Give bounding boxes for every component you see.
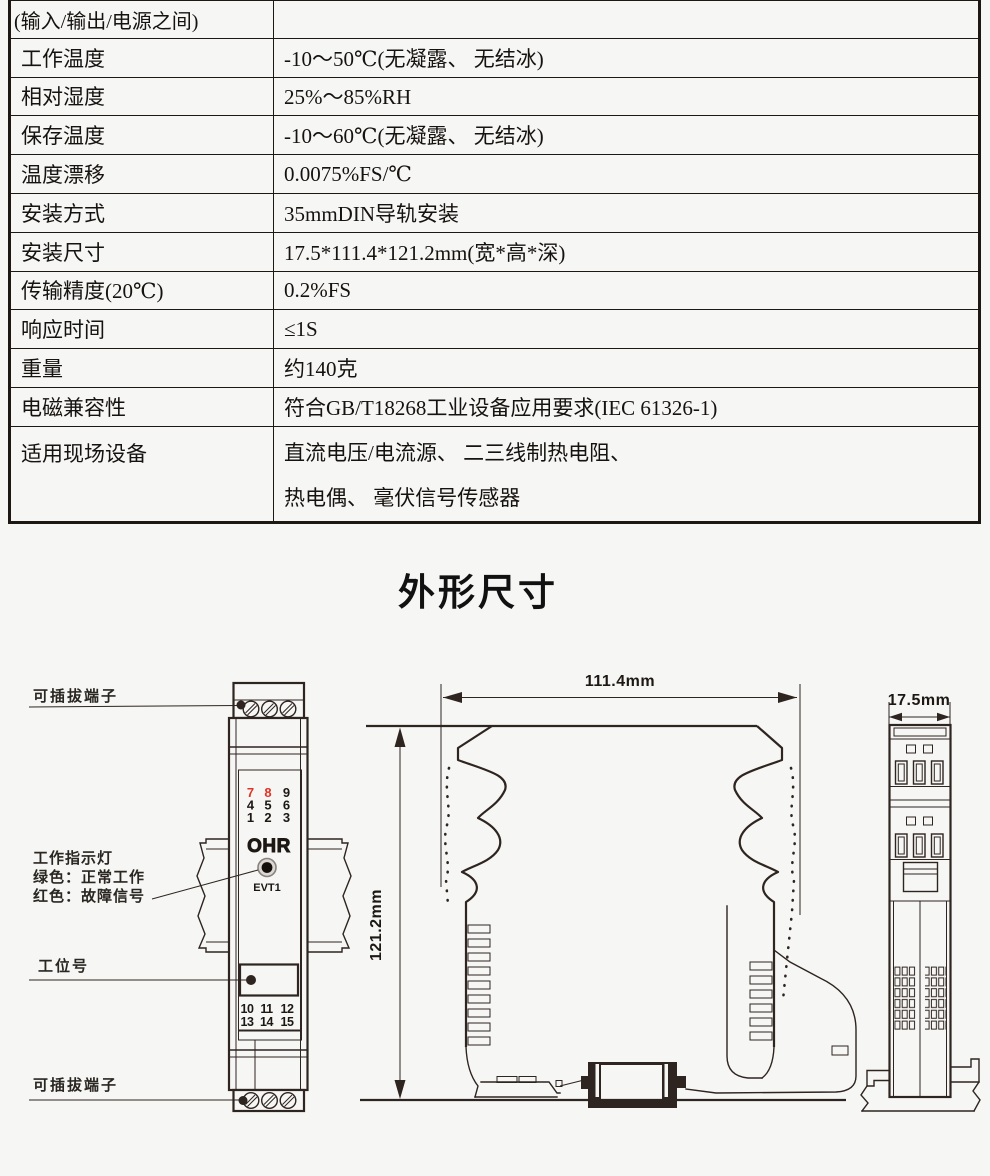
- spec-label: 安装方式: [10, 193, 274, 232]
- callout-indicator-title: 工作指示灯: [33, 849, 113, 867]
- terminal-block-bottom: [234, 1090, 305, 1111]
- spec-value: 热电偶、 毫伏信号传感器: [284, 476, 972, 521]
- callout-indicator-red: 红色：故障信号: [33, 887, 145, 905]
- profile-outline: [360, 726, 856, 1108]
- spec-label: 安装尺寸: [10, 232, 274, 271]
- table-row: 保存温度-10～60℃(无凝露、 无结冰): [10, 116, 980, 155]
- spec-table: (输入/输出/电源之间)工作温度-10～50℃(无凝露、 无结冰)相对湿度25%…: [8, 0, 981, 524]
- spec-value: 25%～85%RH: [274, 77, 980, 116]
- dim-width-label: 111.4mm: [585, 673, 655, 690]
- spec-value: 约140克: [274, 349, 980, 388]
- spec-value: -10～50℃(无凝露、 无结冰): [274, 38, 980, 77]
- spec-label: 重量: [10, 349, 274, 388]
- spec-label: 响应时间: [10, 310, 274, 349]
- dimension-depth: 121.2mm: [368, 728, 406, 1100]
- spec-label: 工作温度: [10, 38, 274, 77]
- table-row: 相对湿度25%～85%RH: [10, 77, 980, 116]
- status-led-icon: [258, 859, 276, 877]
- brand-logo: OHR: [247, 836, 291, 857]
- table-row: 工作温度-10～50℃(无凝露、 无结冰): [10, 38, 980, 77]
- dim-depth-label: 121.2mm: [368, 889, 385, 961]
- spec-value: ≤1S: [274, 310, 980, 349]
- terminal-number: 12: [281, 1002, 294, 1016]
- spec-label: 温度漂移: [10, 155, 274, 194]
- spec-label: 适用现场设备: [10, 426, 274, 522]
- terminal-number: 11: [260, 1002, 273, 1016]
- spec-label: (输入/输出/电源之间): [10, 0, 274, 38]
- callout-indicator-green: 绿色：正常工作: [33, 868, 145, 886]
- callouts: 可插拔端子 工作指示灯 绿色：正常工作 红色：故障信号 工位号 可插拔端子: [29, 687, 258, 1100]
- terminal-block-top: [234, 683, 305, 718]
- leader-dot: [237, 701, 246, 710]
- spec-label: 相对湿度: [10, 77, 274, 116]
- section-title: 外形尺寸: [0, 562, 956, 616]
- table-row: 安装方式35mmDIN导轨安装: [10, 193, 980, 232]
- narrow-side-view: 17.5mm: [861, 692, 980, 1111]
- dimension-width: 111.4mm: [441, 673, 800, 915]
- terminal-number: 14: [260, 1015, 273, 1029]
- callout-terminal-bottom: 可插拔端子: [33, 1076, 118, 1094]
- dimension-side: 17.5mm: [888, 692, 951, 729]
- terminal-number: 10: [241, 1002, 254, 1016]
- side-profile-view: 111.4mm 121.2mm: [360, 673, 856, 1108]
- table-row: 重量约140克: [10, 349, 980, 388]
- table-row: 安装尺寸17.5*111.4*121.2mm(宽*高*深): [10, 232, 980, 271]
- led-label: EVT1: [253, 882, 281, 894]
- spec-value: 直流电压/电流源、 二三线制热电阻、: [284, 431, 972, 476]
- rail-slider-foot: [475, 1077, 588, 1098]
- vent-slots-left: [468, 925, 490, 1045]
- spec-value: -10～60℃(无凝露、 无结冰): [274, 116, 980, 155]
- terminal-number: 2: [264, 810, 271, 825]
- outline-drawing: 7 8 9 4 5 6 1 2 3 OHR EVT1: [0, 640, 990, 1176]
- module-body: [229, 718, 308, 1090]
- spec-label: 传输精度(20℃): [10, 271, 274, 310]
- terminal-numbers-bottom: 10 11 12 13 14 15: [241, 1002, 294, 1029]
- table-row: 电磁兼容性符合GB/T18268工业设备应用要求(IEC 61326-1): [10, 387, 980, 426]
- callout-terminal-top: 可插拔端子: [33, 687, 118, 705]
- spec-value: 0.0075%FS/℃: [274, 155, 980, 194]
- table-row: 响应时间≤1S: [10, 310, 980, 349]
- terminal-number: 1: [247, 810, 254, 825]
- dim-side-label: 17.5mm: [888, 692, 951, 709]
- table-row: 温度漂移0.0075%FS/℃: [10, 155, 980, 194]
- vent-grid: [895, 966, 917, 1031]
- spec-label: 保存温度: [10, 116, 274, 155]
- spec-value: 符合GB/T18268工业设备应用要求(IEC 61326-1): [274, 387, 980, 426]
- table-row: 传输精度(20℃)0.2%FS: [10, 271, 980, 310]
- front-view: 7 8 9 4 5 6 1 2 3 OHR EVT1: [29, 683, 351, 1111]
- narrow-body: [890, 725, 951, 1097]
- callout-station-no: 工位号: [38, 957, 89, 975]
- datasheet-page: (输入/输出/电源之间)工作温度-10～50℃(无凝露、 无结冰)相对湿度25%…: [0, 0, 990, 1176]
- vent-slots-right: [750, 962, 772, 1040]
- vent-grid: [925, 966, 947, 1031]
- terminal-number: 13: [241, 1015, 254, 1029]
- terminal-number: 3: [283, 810, 290, 825]
- table-row: 适用现场设备直流电压/电流源、 二三线制热电阻、热电偶、 毫伏信号传感器: [10, 426, 980, 522]
- spec-value: 35mmDIN导轨安装: [274, 193, 980, 232]
- terminal-number: 15: [281, 1015, 294, 1029]
- spec-value: [274, 0, 980, 38]
- table-row: (输入/输出/电源之间): [10, 0, 980, 38]
- terminal-numbers-top: 7 8 9 4 5 6 1 2 3: [247, 785, 290, 825]
- spec-value: 17.5*111.4*121.2mm(宽*高*深): [274, 232, 980, 271]
- spec-label: 电磁兼容性: [10, 387, 274, 426]
- spec-value: 0.2%FS: [274, 271, 980, 310]
